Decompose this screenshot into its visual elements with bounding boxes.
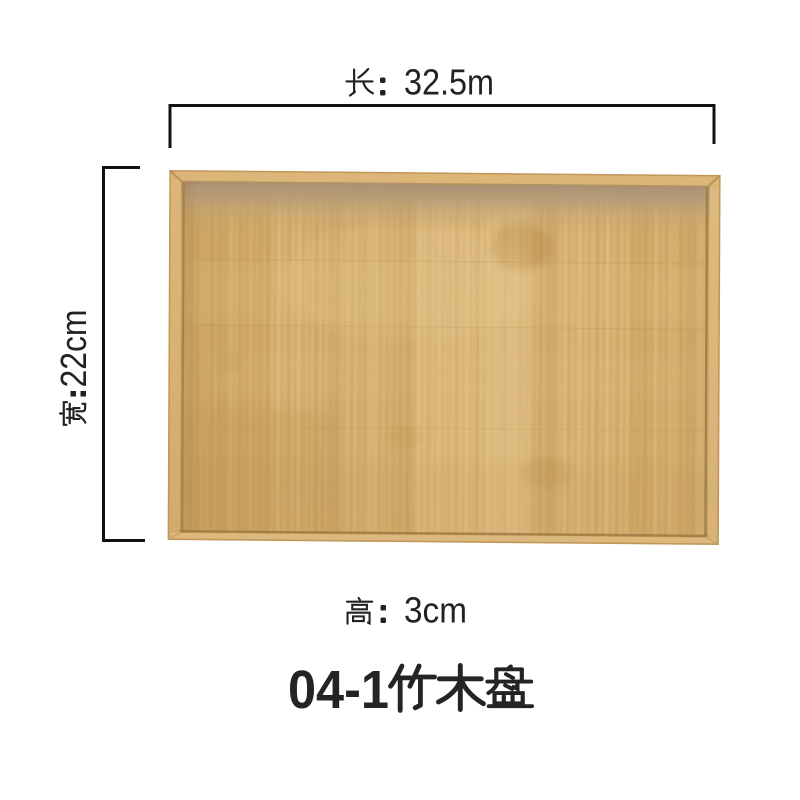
svg-text:3cm: 3cm [404,590,467,631]
svg-text:04-1: 04-1 [288,660,389,720]
svg-text:32.5m: 32.5m [404,62,494,103]
svg-text:22cm: 22cm [53,310,94,388]
